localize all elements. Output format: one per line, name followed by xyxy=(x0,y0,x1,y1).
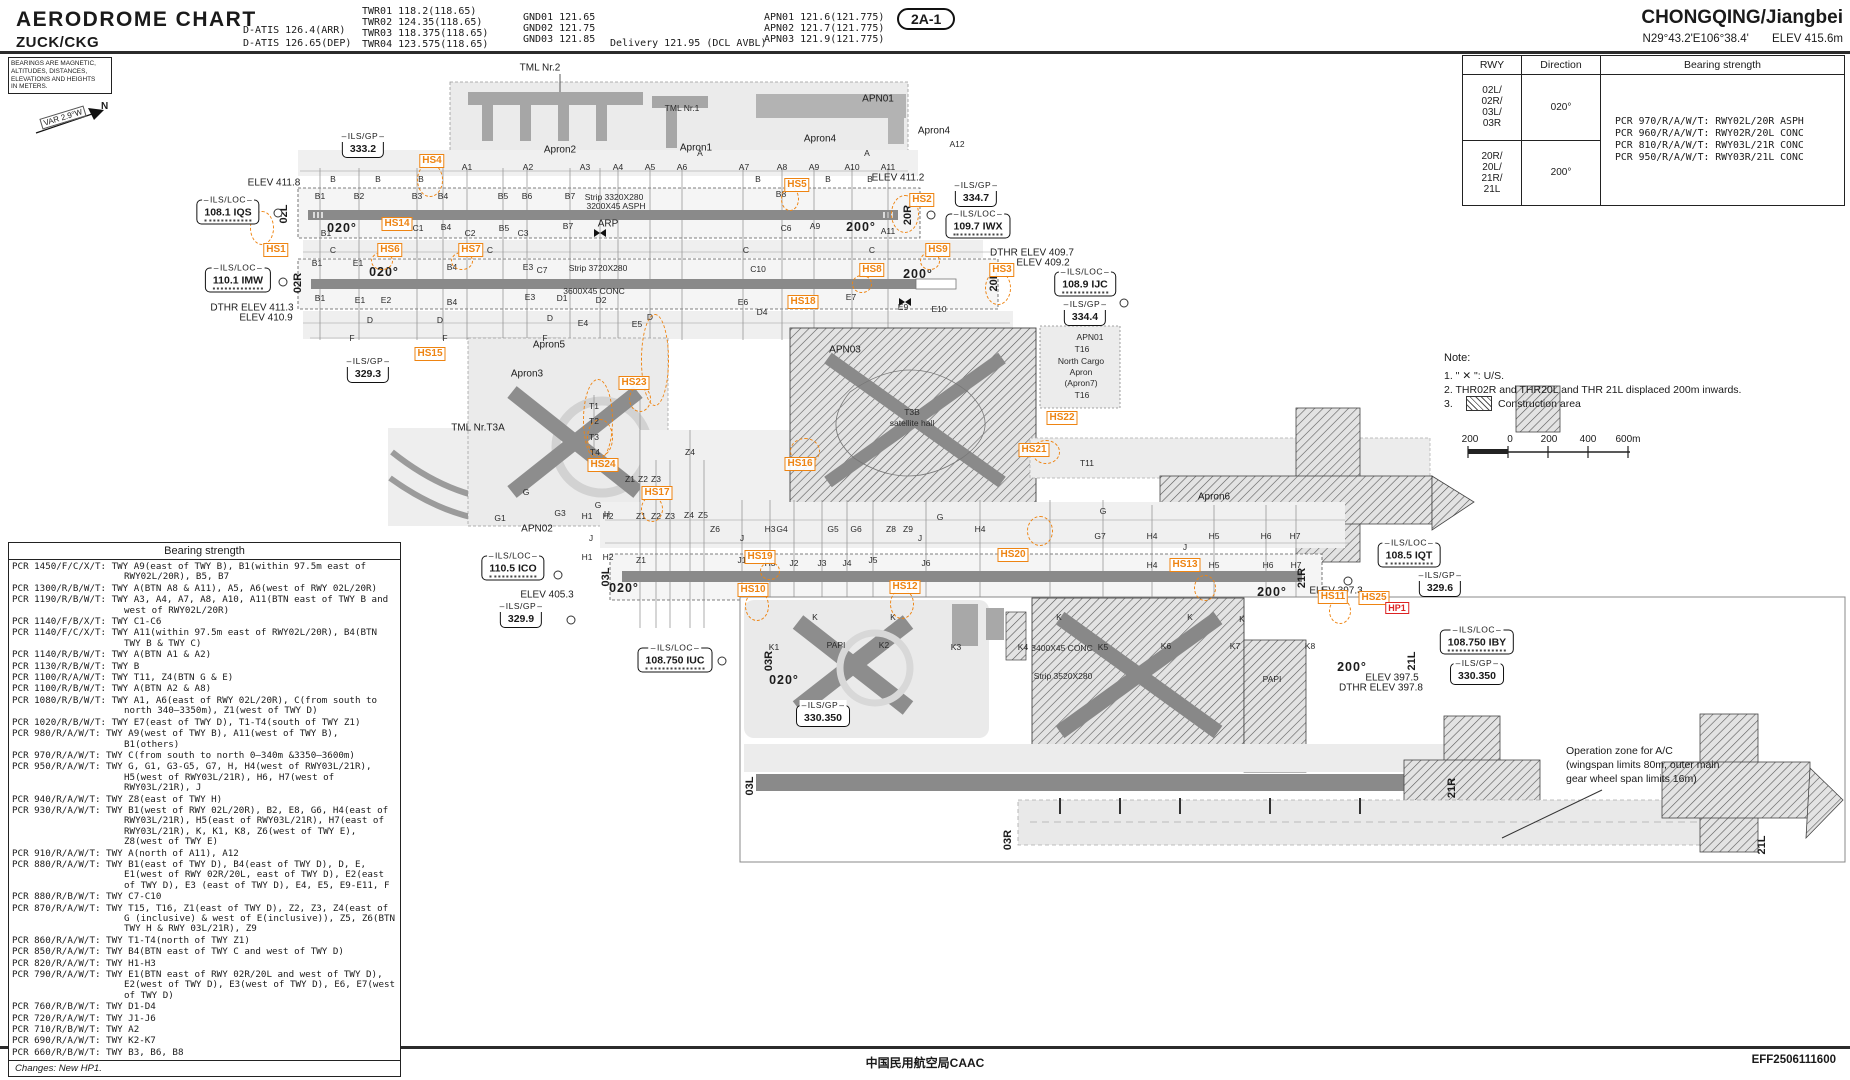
map-label: Z3 xyxy=(665,511,675,521)
hotspot-label: HS5 xyxy=(784,178,809,192)
bearing-strength-row: PCR 930/R/A/W/T: TWY B1(west of RWY 02L/… xyxy=(12,806,397,848)
map-label: APN01 xyxy=(862,94,894,105)
hotspot-label: HS18 xyxy=(787,295,818,309)
map-label: B6 xyxy=(522,191,532,201)
map-label: A xyxy=(697,148,703,158)
map-label: E9 xyxy=(898,302,908,312)
map-label: B4 xyxy=(441,222,451,232)
ils-box: ILS/GP334.4 xyxy=(1064,304,1106,326)
map-label: B xyxy=(867,174,873,184)
map-label: Z6 xyxy=(710,524,720,534)
map-label: B1 xyxy=(321,228,331,238)
ils-frequency-ident: 333.2 xyxy=(350,143,376,155)
map-label: Apron2 xyxy=(544,145,576,156)
map-label: 200° xyxy=(1337,660,1367,674)
map-label: Z3 xyxy=(651,474,661,484)
map-label: 020° xyxy=(769,673,799,687)
map-label: D4 xyxy=(757,307,768,317)
map-label: C10 xyxy=(750,264,766,274)
bearing-strength-row: PCR 1300/R/B/W/T: TWY A(BTN A8 & A11), A… xyxy=(12,584,397,594)
map-label: APN03 xyxy=(829,345,861,356)
bearing-table-rows: PCR 1450/F/C/X/T: TWY A9(east of TWY B),… xyxy=(9,560,400,1060)
map-label: B7 xyxy=(563,221,573,231)
ils-box-title: ILS/GP xyxy=(1417,570,1464,581)
ils-box-title: ILS/LOC xyxy=(212,263,265,274)
bearing-strength-row: PCR 720/R/A/W/T: TWY J1-J6 xyxy=(12,1014,397,1024)
map-label: G xyxy=(1100,506,1107,516)
map-label: D xyxy=(547,313,553,323)
taxiway-bearing-strength-table: Bearing strength PCR 1450/F/C/X/T: TWY A… xyxy=(8,542,401,1077)
map-label: K3 xyxy=(951,642,961,652)
map-label: J6 xyxy=(922,558,931,568)
hotspot-label: HS13 xyxy=(1169,558,1200,572)
ils-box: ILS/GP329.9 xyxy=(500,606,542,628)
bearing-strength-row: PCR 870/R/A/W/T: TWY T15, T16, Z1(east o… xyxy=(12,904,397,935)
hotspot-circle xyxy=(1027,516,1053,546)
map-label: H4 xyxy=(975,524,986,534)
map-label: H6 xyxy=(1261,531,1272,541)
map-label: TML Nr.T3A xyxy=(451,423,505,434)
map-label: E3 xyxy=(525,292,535,302)
hotspot-label: HS10 xyxy=(737,583,768,597)
map-label: H2 xyxy=(603,552,614,562)
ils-box: ILS/LOC110.5 ICO xyxy=(481,556,544,581)
map-label: H4 xyxy=(1147,560,1158,570)
bearing-strength-row: PCR 880/R/B/W/T: TWY C7-C10 xyxy=(12,892,397,902)
map-label: E1 xyxy=(353,258,363,268)
bearing-strength-row: PCR 1140/F/C/X/T: TWY A11(within 97.5m e… xyxy=(12,628,397,649)
circle-marker xyxy=(567,616,576,625)
map-label: 03L xyxy=(744,777,756,796)
map-label: K4 xyxy=(1018,642,1028,652)
map-label: H3 xyxy=(765,524,776,534)
hotspot-circle xyxy=(852,275,872,293)
map-label: E7 xyxy=(846,292,856,302)
map-label: Z4 xyxy=(685,447,695,457)
ils-box-title: ILS/LOC xyxy=(487,551,540,562)
map-label: Apron1 xyxy=(680,143,712,154)
map-label: G1 xyxy=(494,513,505,523)
map-label: T16 xyxy=(1075,390,1090,400)
bearing-strength-row: PCR 910/R/A/W/T: TWY A(north of A11), A1… xyxy=(12,849,397,859)
aerodrome-chart-page: AERODROME CHART ZUCK/CKG BEARINGS ARE MA… xyxy=(0,0,1850,1080)
map-label: K5 xyxy=(1098,642,1108,652)
hotspot-label: HS2 xyxy=(909,193,934,207)
map-label: G7 xyxy=(1094,531,1105,541)
bearing-strength-row: PCR 1190/R/B/W/T: TWY A3, A4, A7, A8, A1… xyxy=(12,595,397,616)
hotspot-label: HS4 xyxy=(419,154,444,168)
hotspot-label: HS11 xyxy=(1318,590,1348,604)
ils-frequency-ident: 108.5 IQT xyxy=(1386,550,1433,565)
bearing-table-title: Bearing strength xyxy=(9,543,400,560)
map-label: K8 xyxy=(1305,641,1315,651)
ils-box-title: ILS/GP xyxy=(1454,658,1501,669)
ils-frequency-ident: 330.350 xyxy=(1458,670,1496,682)
map-label: H5 xyxy=(1209,531,1220,541)
map-label: North Cargo xyxy=(1058,356,1104,366)
map-label: J xyxy=(1183,542,1187,552)
map-label: Z1 xyxy=(625,474,635,484)
map-label: C6 xyxy=(781,223,792,233)
map-label: PAPI xyxy=(827,640,846,650)
map-label: A11 xyxy=(881,162,896,172)
map-label: J xyxy=(740,533,744,543)
map-label: Z1 xyxy=(636,555,646,565)
map-label: A12 xyxy=(949,139,964,149)
hotspot-label: HS16 xyxy=(784,457,815,471)
ils-box-title: ILS/GP xyxy=(800,700,847,711)
ils-box: ILS/GP329.6 xyxy=(1419,575,1461,597)
ils-frequency-ident: 108.750 IUC xyxy=(646,655,705,670)
ils-box: ILS/LOC108.1 IQS xyxy=(196,200,259,225)
ils-box-title: ILS/LOC xyxy=(1383,538,1436,549)
map-label: satellite hall xyxy=(890,418,934,428)
hotspot-label: HS20 xyxy=(997,548,1028,562)
map-label: B1 xyxy=(315,293,325,303)
map-label: F xyxy=(349,333,354,343)
map-label: C1 xyxy=(413,223,424,233)
map-label: E10 xyxy=(931,304,946,314)
map-label: TML Nr.1 xyxy=(665,103,700,113)
hotspot-circle xyxy=(760,562,780,580)
map-label: B xyxy=(330,174,336,184)
map-label: G5 xyxy=(827,524,838,534)
ils-frequency-ident: 329.3 xyxy=(355,368,381,380)
map-label: TML Nr.2 xyxy=(520,63,561,74)
bearing-strength-row: PCR 760/R/B/W/T: TWY D1-D4 xyxy=(12,1002,397,1012)
map-label: E1 xyxy=(355,295,365,305)
hotspot-label: HS17 xyxy=(641,486,672,500)
ils-frequency-ident: 108.1 IQS xyxy=(204,207,251,222)
ils-box: ILS/LOC108.5 IQT xyxy=(1378,543,1441,568)
map-label: A9 xyxy=(809,162,819,172)
map-label: T3B xyxy=(904,407,920,417)
map-label: J4 xyxy=(843,558,852,568)
hotspot-circle xyxy=(417,163,443,197)
map-label: A3 xyxy=(580,162,590,172)
circle-marker xyxy=(279,278,288,287)
map-label: J5 xyxy=(869,555,878,565)
map-label: 020° xyxy=(609,581,639,595)
map-label: ELEV 411.8 xyxy=(248,178,301,189)
map-label: 3400X45 CONC xyxy=(1031,643,1092,653)
ils-frequency-ident: 329.6 xyxy=(1427,582,1453,594)
bearing-strength-row: PCR 710/R/B/W/T: TWY A2 xyxy=(12,1025,397,1035)
ils-box: ILS/GP330.350 xyxy=(796,705,850,727)
map-label: ARP xyxy=(598,219,619,230)
hotspot-label: HS19 xyxy=(744,550,775,564)
map-label: A4 xyxy=(613,162,623,172)
map-label: A5 xyxy=(645,162,655,172)
ils-box: ILS/LOC108.750 IBY xyxy=(1440,630,1514,655)
bearing-strength-row: PCR 880/R/A/W/T: TWY B1(east of TWY D), … xyxy=(12,860,397,891)
map-label: F xyxy=(442,333,447,343)
map-label: A11 xyxy=(881,226,896,236)
bearing-strength-row: PCR 950/R/A/W/T: TWY G, G1, G3-G5, G7, H… xyxy=(12,762,397,793)
changes-note: Changes: New HP1. xyxy=(9,1060,400,1076)
map-label: G4 xyxy=(776,524,787,534)
map-label: B4 xyxy=(438,191,448,201)
hotspot-label: HS6 xyxy=(377,243,402,257)
map-label: A xyxy=(864,148,870,158)
map-label: 03R xyxy=(763,651,775,671)
map-label: E5 xyxy=(632,319,642,329)
ils-box-title: ILS/LOC xyxy=(1059,267,1112,278)
map-label: B xyxy=(375,174,381,184)
map-label: B1 xyxy=(312,258,322,268)
ils-box: ILS/GP329.3 xyxy=(347,361,389,383)
map-label: G xyxy=(937,512,944,522)
hotspot-label: HS24 xyxy=(587,458,618,472)
ils-box: ILS/LOC108.750 IUC xyxy=(638,648,713,673)
map-label: ELEV 410.9 xyxy=(239,313,292,324)
map-label: A10 xyxy=(844,162,859,172)
map-label: Z5 xyxy=(698,510,708,520)
ils-frequency-ident: 110.1 IMW xyxy=(213,275,263,290)
map-label: G3 xyxy=(554,508,565,518)
map-label: K xyxy=(812,612,818,622)
map-label: B xyxy=(755,174,761,184)
bearing-strength-row: PCR 850/R/A/W/T: TWY B4(BTN east of TWY … xyxy=(12,947,397,957)
map-label: H4 xyxy=(1147,531,1158,541)
map-label: C xyxy=(869,245,875,255)
map-label: A6 xyxy=(677,162,687,172)
circle-marker xyxy=(1120,299,1129,308)
map-label: K2 xyxy=(879,640,889,650)
map-label: B xyxy=(825,174,831,184)
map-label: C xyxy=(330,245,336,255)
map-label: G xyxy=(595,500,602,510)
map-label: D xyxy=(437,315,443,325)
map-label: T16 xyxy=(1075,344,1090,354)
bearing-strength-row: PCR 690/R/A/W/T: TWY K2-K7 xyxy=(12,1036,397,1046)
hotspot-label: HS21 xyxy=(1018,443,1049,457)
hotspot-circle xyxy=(1194,575,1216,601)
map-label: K7 xyxy=(1230,641,1240,651)
bearing-strength-row: PCR 940/R/A/W/T: TWY Z8(east of TWY H) xyxy=(12,795,397,805)
map-label: 200° xyxy=(1257,585,1287,599)
map-label: A2 xyxy=(523,162,533,172)
ils-frequency-ident: 329.9 xyxy=(508,613,534,625)
map-label: B4 xyxy=(447,297,457,307)
hotspot-label: HS9 xyxy=(925,243,950,257)
circle-marker xyxy=(554,571,563,580)
ils-box-title: ILS/GP xyxy=(345,356,392,367)
map-label: D xyxy=(367,315,373,325)
ils-box-title: ILS/GP xyxy=(340,131,387,142)
map-label: Apron4 xyxy=(804,134,836,145)
map-label: H6 xyxy=(1263,560,1274,570)
ils-box: ILS/GP333.2 xyxy=(342,136,384,158)
map-label: C2 xyxy=(465,228,476,238)
map-label: T11 xyxy=(1080,458,1094,468)
map-label: Apron xyxy=(1070,367,1093,377)
map-label: (Apron7) xyxy=(1064,378,1097,388)
map-label: H2 xyxy=(603,511,614,521)
map-label: Strip 3520X280 xyxy=(1034,671,1093,681)
map-label: 03L xyxy=(600,568,612,587)
map-label: B2 xyxy=(354,191,364,201)
map-label: ELEV 405.3 xyxy=(520,590,573,601)
hotspot-label: HS22 xyxy=(1046,411,1077,425)
map-label: K xyxy=(1056,612,1062,622)
map-label: Z9 xyxy=(903,524,913,534)
map-label: E2 xyxy=(381,295,391,305)
map-label: J xyxy=(589,533,593,543)
hotspot-label: HS3 xyxy=(989,263,1014,277)
ils-box: ILS/GP330.350 xyxy=(1450,663,1504,685)
map-label: PAPI xyxy=(1263,674,1282,684)
circle-marker xyxy=(927,211,936,220)
ils-box-title: ILS/GP xyxy=(1062,299,1109,310)
map-label: C xyxy=(487,245,493,255)
map-label: G6 xyxy=(850,524,861,534)
map-label: 02R xyxy=(292,273,304,293)
ils-box-title: ILS/GP xyxy=(953,180,1000,191)
map-label: E6 xyxy=(738,297,748,307)
ils-box-title: ILS/LOC xyxy=(649,643,702,654)
map-label: Apron4 xyxy=(918,126,950,137)
map-label: C3 xyxy=(518,228,529,238)
hotspot-label: HS12 xyxy=(889,580,920,594)
map-label: Z4 xyxy=(684,510,694,520)
map-label: K xyxy=(1187,612,1193,622)
hotspot-label: HS14 xyxy=(381,217,412,231)
map-label: H1 xyxy=(582,552,593,562)
map-label: APN02 xyxy=(521,524,553,535)
ils-frequency-ident: 108.750 IBY xyxy=(1448,637,1506,652)
effective-date-code: EFF2506111600 xyxy=(1752,1054,1836,1066)
map-label: K xyxy=(1239,614,1245,624)
ils-box: ILS/GP334.7 xyxy=(955,185,997,207)
ils-frequency-ident: 110.5 ICO xyxy=(489,563,536,578)
ils-box-title: ILS/LOC xyxy=(1451,625,1504,636)
map-label: Strip 3720X280 xyxy=(569,263,628,273)
bearing-strength-row: PCR 1130/R/B/W/T: TWY B xyxy=(12,662,397,672)
map-label: 21L xyxy=(1406,652,1418,671)
map-label: A9 xyxy=(810,221,820,231)
holding-point-label: HP1 xyxy=(1385,602,1409,614)
map-label: K6 xyxy=(1161,641,1171,651)
map-label: Apron3 xyxy=(511,369,543,380)
hotspot-label: HS23 xyxy=(618,376,649,390)
map-label: E4 xyxy=(578,318,588,328)
ils-box-title: ILS/GP xyxy=(498,601,545,612)
map-label: ELEV 411.2 xyxy=(872,173,925,184)
ils-box: ILS/LOC108.9 IJC xyxy=(1054,272,1116,297)
map-label: G xyxy=(523,487,530,497)
circle-marker xyxy=(1344,577,1353,586)
map-label: DTHR ELEV 397.8 xyxy=(1339,683,1423,694)
bearing-strength-row: PCR 970/R/A/W/T: TWY C(from south to nor… xyxy=(12,751,397,761)
map-label: Z8 xyxy=(886,524,896,534)
map-label: B1 xyxy=(315,191,325,201)
map-label: C xyxy=(743,245,749,255)
map-label: J2 xyxy=(790,558,799,568)
map-label: 3600X45 CONC xyxy=(563,286,624,296)
ils-box-title: ILS/LOC xyxy=(952,209,1005,220)
map-label: A8 xyxy=(777,162,787,172)
bearing-strength-row: PCR 1140/F/B/X/T: TWY C1-C6 xyxy=(12,617,397,627)
ils-box: ILS/LOC109.7 IWX xyxy=(945,214,1010,239)
map-label: D1 xyxy=(557,293,568,303)
map-label: 03R xyxy=(1002,830,1014,850)
map-label: A7 xyxy=(739,162,749,172)
circle-marker xyxy=(718,657,727,666)
bearing-strength-row: PCR 860/R/A/W/T: TWY T1-T4(north of TWY … xyxy=(12,936,397,946)
hotspot-circle xyxy=(641,314,669,406)
ils-frequency-ident: 334.7 xyxy=(963,192,989,204)
map-label: 020° xyxy=(327,221,357,235)
hotspot-label: HS7 xyxy=(458,243,483,257)
map-label: H1 xyxy=(582,511,593,521)
ils-box-title: ILS/LOC xyxy=(202,195,255,206)
map-label: 200° xyxy=(846,220,876,234)
hotspot-label: HS15 xyxy=(414,347,445,361)
map-label: J3 xyxy=(818,558,827,568)
circle-marker xyxy=(274,209,283,218)
map-label: 21L xyxy=(1756,836,1768,855)
bearing-strength-row: PCR 1140/R/B/W/T: TWY A(BTN A1 & A2) xyxy=(12,650,397,660)
bearing-strength-row: PCR 1020/R/B/W/T: TWY E7(east of TWY D),… xyxy=(12,718,397,728)
bearing-strength-row: PCR 980/R/A/W/T: TWY A9(west of TWY B), … xyxy=(12,729,397,750)
map-label: C7 xyxy=(537,265,548,275)
bearing-strength-row: PCR 1100/R/B/W/T: TWY A(BTN A2 & A8) xyxy=(12,684,397,694)
bearing-strength-row: PCR 1080/R/B/W/T: TWY A1, A6(east of RWY… xyxy=(12,696,397,717)
map-label: Apron5 xyxy=(533,340,565,351)
map-label: E3 xyxy=(523,262,533,272)
ils-frequency-ident: 108.9 IJC xyxy=(1062,279,1108,294)
ils-frequency-ident: 109.7 IWX xyxy=(953,221,1002,236)
map-label: B5 xyxy=(499,223,509,233)
bearing-strength-row: PCR 660/R/B/W/T: TWY B3, B6, B8 xyxy=(12,1048,397,1058)
bearing-strength-row: PCR 820/R/A/W/T: TWY H1-H3 xyxy=(12,959,397,969)
bearing-strength-row: PCR 1100/R/A/W/T: TWY T11, Z4(BTN G & E) xyxy=(12,673,397,683)
map-label: 21R xyxy=(1296,568,1308,588)
map-label: Apron6 xyxy=(1198,492,1230,503)
ils-frequency-ident: 330.350 xyxy=(804,712,842,724)
map-label: B5 xyxy=(498,191,508,201)
map-label: H5 xyxy=(1209,560,1220,570)
map-label: 21R xyxy=(1446,778,1458,798)
map-label: B7 xyxy=(565,191,575,201)
hotspot-label: HS1 xyxy=(263,243,288,257)
hotspot-label: HS8 xyxy=(859,263,884,277)
ils-box: ILS/LOC110.1 IMW xyxy=(205,268,271,293)
hotspot-circle xyxy=(583,379,613,461)
map-label: A1 xyxy=(462,162,472,172)
ils-frequency-ident: 334.4 xyxy=(1072,311,1098,323)
bearing-strength-row: PCR 790/R/A/W/T: TWY E1(BTN east of RWY … xyxy=(12,970,397,1001)
map-label: D2 xyxy=(596,295,607,305)
map-label: J xyxy=(918,533,922,543)
map-label: H7 xyxy=(1290,531,1301,541)
bearing-strength-row: PCR 1450/F/C/X/T: TWY A9(east of TWY B),… xyxy=(12,562,397,583)
map-label: APN01 xyxy=(1077,332,1104,342)
map-label: 3200X45 ASPH xyxy=(586,201,645,211)
map-label: Z2 xyxy=(638,474,648,484)
